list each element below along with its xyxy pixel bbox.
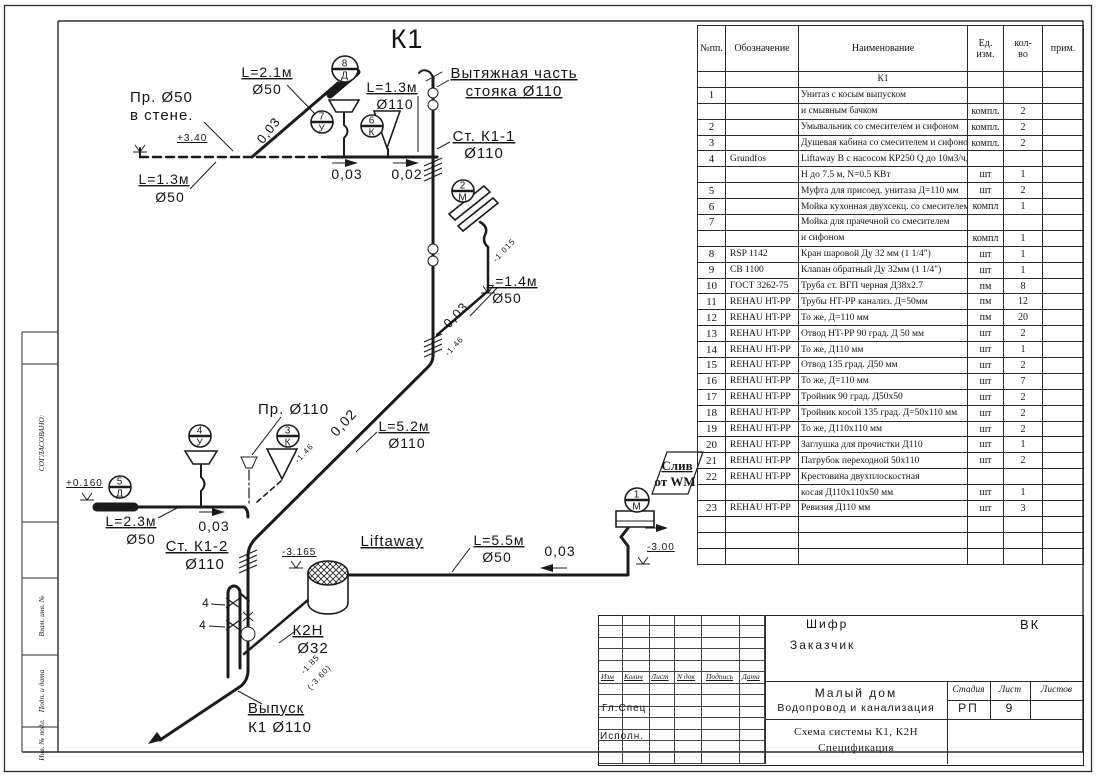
revision-grid-cell <box>650 661 675 672</box>
tb-divider <box>765 615 766 764</box>
leader <box>452 548 470 572</box>
tb-sheet-label: Лист <box>990 685 1030 695</box>
spec-cell: шт <box>968 373 1004 389</box>
revision-header-label: Изм <box>601 673 614 681</box>
spec-cell: шт <box>968 453 1004 469</box>
diagram-label: Ø110 <box>464 145 504 162</box>
spec-cell <box>968 87 1004 103</box>
spec-row: 11REHAU HT-PPТрубы НТ-РР канализ. Д=50мм… <box>698 294 1084 310</box>
revision-grid-cell <box>675 730 702 741</box>
revision-header-label: Подпись <box>706 673 733 681</box>
revision-grid-cell <box>702 684 740 695</box>
spec-cell: Тройник 90 град. Д50х50 <box>799 389 968 405</box>
spec-cell: REHAU HT-PP <box>726 405 799 421</box>
diagram-label: Вытяжная часть <box>450 65 577 82</box>
spec-cell: 3 <box>698 135 726 151</box>
revision-grid-cell <box>598 684 623 695</box>
revision-grid-cell <box>702 649 740 660</box>
revision-grid-cell <box>675 626 702 637</box>
cleanout-icon <box>428 256 438 266</box>
spec-row: 2Умывальник со смесителем и сифономкомпл… <box>698 119 1084 135</box>
spec-cell <box>1004 516 1043 532</box>
spec-cell: шт <box>968 342 1004 358</box>
revision-grid-cell <box>740 695 765 706</box>
spec-cell: 7 <box>698 215 726 231</box>
spec-row: 12REHAU HT-PPТо же, Д=110 ммпм20 <box>698 310 1084 326</box>
spec-cell: 4 <box>698 151 726 167</box>
revision-grid-cell <box>623 718 650 729</box>
equipment-tag-letter: М <box>632 502 641 513</box>
cleanout-icon <box>241 627 255 641</box>
spec-cell: 18 <box>698 405 726 421</box>
spec-cell <box>1043 246 1084 262</box>
spec-cell: 2 <box>1004 135 1043 151</box>
revision-grid-cell <box>740 615 765 626</box>
liftaway-top <box>308 561 348 585</box>
specification-table: №пп.ОбозначениеНаименованиеЕд. изм.кол- … <box>697 25 1084 565</box>
spec-cell: REHAU HT-PP <box>726 310 799 326</box>
diagram-label: L=2.1м <box>241 64 292 80</box>
equipment-tag-letter: Д <box>341 71 349 82</box>
diagram-label: Слив <box>661 458 692 473</box>
revision-grid-cell <box>650 626 675 637</box>
leader <box>437 142 450 149</box>
spec-cell <box>698 532 726 548</box>
spec-row: 13REHAU HT-PPОтвод НТ-РР 90 град. Д 50 м… <box>698 326 1084 342</box>
spec-cell: 11 <box>698 294 726 310</box>
flow-arrow-icon <box>656 524 668 532</box>
spec-cell: 1 <box>1004 199 1043 215</box>
spec-cell: REHAU HT-PP <box>726 326 799 342</box>
spec-column-header: Наименование <box>799 26 968 72</box>
spec-cell: 21 <box>698 453 726 469</box>
spec-header-row: №пп.ОбозначениеНаименованиеЕд. изм.кол- … <box>698 26 1084 72</box>
diagram-label: L=1.4м <box>486 273 537 289</box>
spec-cell: 2 <box>1004 119 1043 135</box>
spec-cell: 10 <box>698 278 726 294</box>
revision-grid-cell <box>740 626 765 637</box>
tb-code-label: Шифр <box>806 618 848 631</box>
spec-row: 21REHAU HT-PPПатрубок переходной 50х110ш… <box>698 453 1084 469</box>
leader <box>204 122 233 151</box>
revision-grid-cell <box>740 707 765 718</box>
spec-cell: REHAU HT-PP <box>726 342 799 358</box>
equipment-tag-number: 8 <box>342 59 349 70</box>
revision-grid-cell <box>702 741 740 752</box>
spec-row: 20REHAU HT-PPЗаглушка для прочистки Д110… <box>698 437 1084 453</box>
spec-cell: REHAU HT-PP <box>726 294 799 310</box>
flow-arrow-icon <box>212 508 225 516</box>
spec-cell: 2 <box>1004 453 1043 469</box>
spec-row: косая Д110х110х50 ммшт1 <box>698 485 1084 501</box>
tb-stage-value: РП <box>947 702 990 715</box>
spec-cell: REHAU HT-PP <box>726 453 799 469</box>
spec-cell <box>1043 87 1084 103</box>
spec-cell: компл. <box>968 135 1004 151</box>
spec-cell <box>726 135 799 151</box>
stamp-column-label: Инв. № подл. <box>37 719 46 762</box>
revision-grid-cell <box>740 638 765 649</box>
spec-cell <box>726 516 799 532</box>
spec-cell <box>1043 326 1084 342</box>
revision-grid-cell <box>675 741 702 752</box>
revision-grid-cell <box>740 649 765 660</box>
spec-cell: Отвод 135 град. Д50 мм <box>799 358 968 374</box>
spec-cell: шт <box>968 501 1004 517</box>
leader <box>158 508 177 518</box>
spec-row: и сифономкомпл1 <box>698 230 1084 246</box>
spec-cell <box>1043 485 1084 501</box>
spec-row: 18REHAU HT-PPТройник косой 135 град. Д=5… <box>698 405 1084 421</box>
spec-cell <box>726 485 799 501</box>
spec-cell: REHAU HT-PP <box>726 501 799 517</box>
spec-cell: Патрубок переходной 50х110 <box>799 453 968 469</box>
washbasin2-icon <box>185 451 217 464</box>
fixtures <box>185 88 703 641</box>
spec-cell <box>698 230 726 246</box>
spec-cell: и сифоном <box>799 230 968 246</box>
leader <box>190 162 216 189</box>
spec-row: К1 <box>698 72 1084 88</box>
spec-cell <box>1004 532 1043 548</box>
spec-cell: Liftaway B с насосом КР250 Q до 10м3/ч, <box>799 151 968 167</box>
spec-cell: 1 <box>1004 167 1043 183</box>
revision-grid-cell <box>702 615 740 626</box>
spec-cell: ГОСТ 3262-75 <box>726 278 799 294</box>
spec-cell <box>968 469 1004 485</box>
spec-cell: RSP 1142 <box>726 246 799 262</box>
revision-grid-cell <box>702 661 740 672</box>
flow-arrows <box>148 159 668 744</box>
spec-cell: Труба ст. ВГП черная Д38х2.7 <box>799 278 968 294</box>
spec-row: 7Мойка для прачечной со смесителем <box>698 215 1084 231</box>
tb-sheets-label: Листов <box>1030 685 1083 695</box>
spec-column-header: №пп. <box>698 26 726 72</box>
spec-cell <box>968 532 1004 548</box>
revision-grid-cell <box>598 626 623 637</box>
diagram-label: Ø110 <box>185 556 225 573</box>
equipment-tag-letter: У <box>318 124 325 135</box>
spec-cell <box>1043 358 1084 374</box>
spec-cell: Мойка для прачечной со смесителем <box>799 215 968 231</box>
funnel-icon <box>241 457 257 468</box>
spec-cell <box>1043 262 1084 278</box>
revision-grid-cell <box>702 638 740 649</box>
spec-cell: Ревизия Д110 мм <box>799 501 968 517</box>
spec-row: 1Унитаз с косым выпуском <box>698 87 1084 103</box>
diagram-label: Ст. К1-1 <box>453 128 516 145</box>
spec-cell <box>726 199 799 215</box>
spec-cell <box>698 548 726 564</box>
spec-cell: Умывальник со смесителем и сифоном <box>799 119 968 135</box>
revision-grid-cell <box>702 626 740 637</box>
spec-cell: 8 <box>698 246 726 262</box>
spec-cell <box>1004 548 1043 564</box>
spec-column-header: кол- во <box>1004 26 1043 72</box>
washing-machine-icon <box>616 511 654 527</box>
equipment-tag-number: 7 <box>319 112 326 123</box>
tb-sheet-value: 9 <box>990 702 1030 715</box>
spec-cell <box>1004 469 1043 485</box>
equipment-tag-letter: К <box>369 128 376 139</box>
spec-row: и смывным бачкомкомпл.2 <box>698 103 1084 119</box>
spec-cell <box>726 87 799 103</box>
diagram-label: К1 Ø110 <box>248 719 312 736</box>
spec-cell <box>1043 516 1084 532</box>
spec-cell <box>1004 87 1043 103</box>
revision-grid-cell <box>650 741 675 752</box>
spec-cell <box>698 103 726 119</box>
diagram-label: 0,03 <box>331 166 362 182</box>
vent-hook <box>419 70 433 78</box>
spec-cell: REHAU HT-PP <box>726 358 799 374</box>
diagram-label: -1.46 <box>443 335 465 358</box>
revision-grid-cell <box>623 649 650 660</box>
flow-arrow-icon <box>540 564 553 572</box>
spec-cell <box>1043 135 1084 151</box>
revision-grid-cell <box>675 638 702 649</box>
revision-grid-cell <box>675 661 702 672</box>
washbasin2-trap-pipe <box>201 465 205 507</box>
diagram-label: Ø50 <box>126 531 155 547</box>
spec-cell <box>1043 119 1084 135</box>
spec-cell: и смывным бачком <box>799 103 968 119</box>
spec-row: 6Мойка кухонная двухсекц. со смесителемк… <box>698 199 1084 215</box>
spec-cell: К1 <box>799 72 968 88</box>
equipment-tag-number: 1 <box>634 490 641 501</box>
spec-cell: Унитаз с косым выпуском <box>799 87 968 103</box>
spec-cell: 5 <box>698 183 726 199</box>
spec-cell <box>726 167 799 183</box>
cleanout-icon <box>428 88 438 98</box>
spec-cell: косая Д110х110х50 мм <box>799 485 968 501</box>
diagram-label: L=5.5м <box>473 532 524 548</box>
spec-cell: Муфта для присоед. унитаза Д=110 мм <box>799 183 968 199</box>
spec-cell <box>726 230 799 246</box>
spec-cell <box>698 72 726 88</box>
spec-cell <box>799 548 968 564</box>
spec-cell: REHAU HT-PP <box>726 469 799 485</box>
revision-grid-cell <box>598 649 623 660</box>
diagram-label: 0,03 <box>198 518 229 534</box>
diagram-label: Ø110 <box>376 96 413 112</box>
spec-cell: 9 <box>698 262 726 278</box>
spec-cell <box>1043 342 1084 358</box>
diagram-label: 0,02 <box>327 406 360 440</box>
spec-cell <box>1043 294 1084 310</box>
spec-cell: То же, Д=110 мм <box>799 373 968 389</box>
spec-cell <box>1043 103 1084 119</box>
spec-cell: 13 <box>698 326 726 342</box>
spec-cell <box>1043 373 1084 389</box>
spec-cell: 23 <box>698 501 726 517</box>
spec-cell: 1 <box>1004 262 1043 278</box>
spec-cell: 12 <box>698 310 726 326</box>
revision-grid-cell <box>740 741 765 752</box>
washbasin-trap-pipe <box>344 113 348 157</box>
diagram-label: -3.165 <box>282 547 316 558</box>
revision-header-label: Лист <box>651 673 669 681</box>
spec-row: 9СВ 1100Клапан обратный Ду 32мм (1 1/4")… <box>698 262 1084 278</box>
tb-executor-label: Исполн. <box>600 731 644 742</box>
washbasin-icon <box>329 100 359 112</box>
spec-cell: 3 <box>1004 501 1043 517</box>
spec-row <box>698 548 1084 564</box>
spec-cell <box>968 548 1004 564</box>
spec-cell <box>726 103 799 119</box>
stamp-column-label: Взам. инв. № <box>37 595 46 636</box>
revision-grid-cell <box>702 718 740 729</box>
spec-cell: То же, Д110 мм <box>799 342 968 358</box>
revision-grid-cell <box>675 707 702 718</box>
spec-cell: 15 <box>698 358 726 374</box>
revision-grid-cell <box>740 730 765 741</box>
revision-grid-cell <box>623 615 650 626</box>
cleanout-icon <box>428 100 438 110</box>
revision-grid-cell <box>598 638 623 649</box>
diagram-label: 4 <box>199 618 207 632</box>
spec-cell: То же, Д=110 мм <box>799 310 968 326</box>
spec-cell: REHAU HT-PP <box>726 373 799 389</box>
spec-cell: 1 <box>1004 246 1043 262</box>
spec-cell: шт <box>968 183 1004 199</box>
equipment-tag-number: 5 <box>117 477 124 488</box>
spec-cell: Тройник косой 135 град. Д=50х110 мм <box>799 405 968 421</box>
equipment-tag-letter: К <box>285 438 292 449</box>
spec-cell <box>726 215 799 231</box>
diagram-label: -1.015 <box>491 237 517 264</box>
equipment-tag: 6К <box>361 115 383 139</box>
tb-code-value: ВК <box>1020 618 1040 632</box>
spec-cell <box>1043 278 1084 294</box>
revision-grid-cell <box>650 718 675 729</box>
diagram-label: Ø50 <box>492 290 521 306</box>
spec-cell: 20 <box>1004 310 1043 326</box>
revision-grid-cell <box>598 661 623 672</box>
spec-cell: 17 <box>698 389 726 405</box>
diagram-label: Liftaway <box>360 533 423 550</box>
spec-cell: 20 <box>698 437 726 453</box>
tb-sheet-title1: Схема системы К1, К2Н <box>767 726 945 738</box>
spec-cell <box>1043 548 1084 564</box>
spec-cell: пм <box>968 278 1004 294</box>
spec-cell: шт <box>968 437 1004 453</box>
spec-cell: Н до 7.5 м, N=0.5 КВт <box>799 167 968 183</box>
elevation-mark-icon <box>289 561 303 568</box>
spec-cell: СВ 1100 <box>726 262 799 278</box>
spec-cell <box>698 167 726 183</box>
spec-cell <box>1043 405 1084 421</box>
revision-grid-cell <box>650 752 675 763</box>
spec-cell <box>1043 215 1084 231</box>
spec-cell: шт <box>968 421 1004 437</box>
spec-row: 19REHAU HT-PPТо же, Д110х110 ммшт2 <box>698 421 1084 437</box>
spec-cell: 1 <box>1004 342 1043 358</box>
spec-cell: REHAU HT-PP <box>726 389 799 405</box>
spec-cell: 22 <box>698 469 726 485</box>
spec-cell <box>968 516 1004 532</box>
revision-grid-cell <box>702 730 740 741</box>
spec-column-header: Обозначение <box>726 26 799 72</box>
equipment-tag-letter: М <box>458 193 467 204</box>
outlet-arrow-icon <box>148 732 163 744</box>
equipment-tag-number: 4 <box>197 426 204 437</box>
revision-grid-cell <box>650 707 675 718</box>
spec-row: 23REHAU HT-PPРевизия Д110 ммшт3 <box>698 501 1084 517</box>
spec-cell <box>1043 151 1084 167</box>
spec-cell <box>799 516 968 532</box>
diagram-label: стояка Ø110 <box>466 83 563 100</box>
spec-cell: 1 <box>1004 230 1043 246</box>
spec-row: Н до 7.5 м, N=0.5 КВтшт1 <box>698 167 1084 183</box>
revision-grid-cell <box>598 741 623 752</box>
spec-cell: 1 <box>1004 437 1043 453</box>
spec-cell: Трубы НТ-РР канализ. Д=50мм <box>799 294 968 310</box>
spec-cell <box>1043 532 1084 548</box>
revision-grid-cell <box>650 649 675 660</box>
tb-customer-label: Заказчик <box>790 639 855 652</box>
spec-cell: 1 <box>698 87 726 103</box>
revision-grid-cell <box>740 718 765 729</box>
spec-row <box>698 516 1084 532</box>
equipment-tag: 4У <box>189 425 211 449</box>
wc2-dashed-pipe <box>257 481 281 502</box>
diagram-label: +3.40 <box>177 133 207 144</box>
tb-chief-label: Гл.Спец <box>602 703 646 714</box>
spec-cell: шт <box>968 485 1004 501</box>
revision-grid-cell <box>598 718 623 729</box>
equipment-tag-number: 3 <box>285 426 292 437</box>
revision-grid-cell <box>675 649 702 660</box>
revision-grid-cell <box>650 638 675 649</box>
revision-grid-cell <box>650 730 675 741</box>
spec-row: 22REHAU HT-PPКрестовина двухплоскостная <box>698 469 1084 485</box>
leader <box>287 85 315 114</box>
equipment-tag: 3К <box>277 425 299 449</box>
diagram-label: 0,02 <box>391 166 422 182</box>
diagram-label: Ø50 <box>252 81 281 97</box>
spec-row: 16REHAU HT-PPТо же, Д=110 ммшт7 <box>698 373 1084 389</box>
tb-divider <box>765 719 1083 720</box>
spec-cell: 8 <box>1004 278 1043 294</box>
equipment-tag: 7У <box>311 111 333 135</box>
spec-cell: Клапан обратный Ду 32мм (1 1/4") <box>799 262 968 278</box>
tb-stage-label: Стадия <box>947 685 990 695</box>
diagram-label: Пр. Ø50 <box>130 89 193 106</box>
spec-cell: REHAU HT-PP <box>726 437 799 453</box>
spec-cell: 2 <box>1004 421 1043 437</box>
spec-cell: 2 <box>1004 103 1043 119</box>
spec-row: 17REHAU HT-PPТройник 90 град. Д50х50шт2 <box>698 389 1084 405</box>
revision-grid-cell <box>675 752 702 763</box>
spec-cell: компл <box>968 199 1004 215</box>
spec-row: 3Душевая кабина со смесителем и сифономк… <box>698 135 1084 151</box>
diagram-label: в стене. <box>130 107 193 124</box>
spec-cell: 12 <box>1004 294 1043 310</box>
spec-column-header: Ед. изм. <box>968 26 1004 72</box>
spec-cell <box>1043 72 1084 88</box>
revision-grid-cell <box>623 752 650 763</box>
generated-symbols: К1Вытяжная частьстояка Ø110Пр. Ø50в стен… <box>37 24 696 762</box>
revision-grid-cell <box>650 695 675 706</box>
spec-row: 4GrundfosLiftaway B с насосом КР250 Q до… <box>698 151 1084 167</box>
revision-grid-cell <box>623 741 650 752</box>
spec-cell: пм <box>968 310 1004 326</box>
equipment-tag-number: 6 <box>369 116 376 127</box>
diagram-label: -3.00 <box>647 542 675 553</box>
elevation-mark-icon <box>80 493 94 500</box>
tb-sheet-title2: Спецификация <box>767 742 945 754</box>
